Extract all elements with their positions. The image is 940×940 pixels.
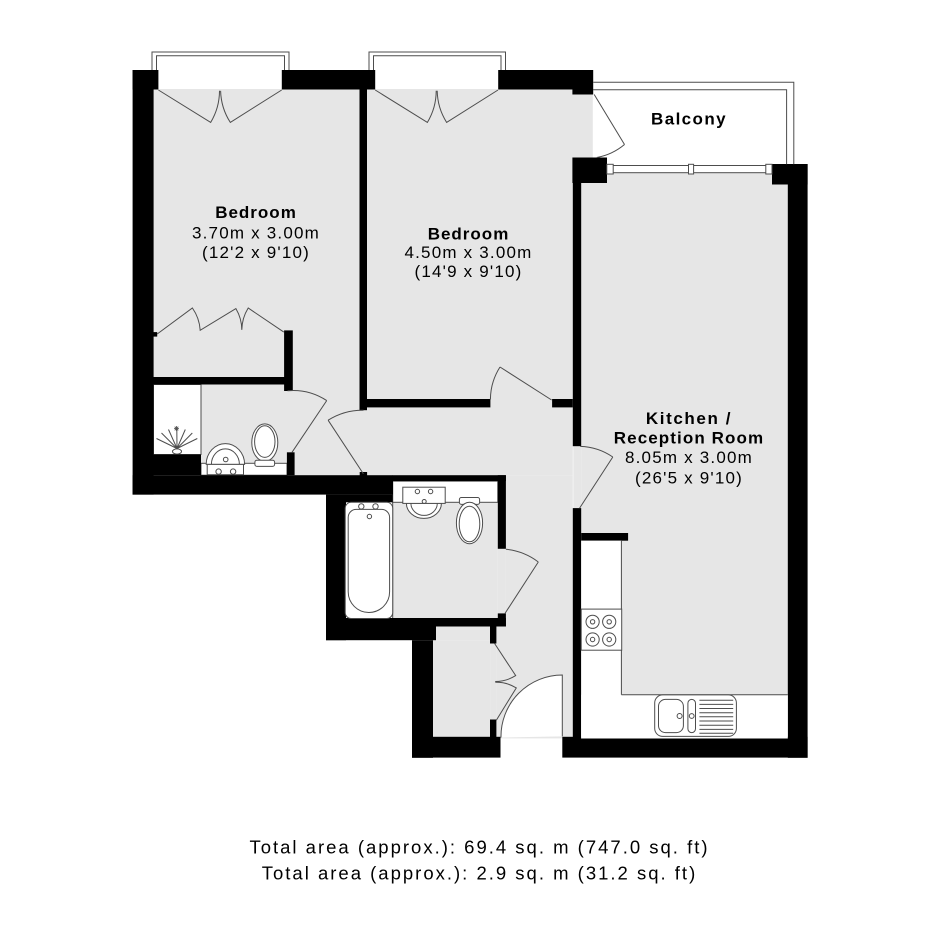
svg-text:Total area (approx.): 2.9 sq.: Total area (approx.): 2.9 sq. m (31.2 sq… — [262, 863, 697, 884]
svg-text:3.70m x 3.00m: 3.70m x 3.00m — [192, 224, 320, 243]
svg-text:Bedroom: Bedroom — [215, 203, 297, 222]
svg-text:(14'9 x 9'10): (14'9 x 9'10) — [414, 262, 522, 281]
svg-text:Total area (approx.): 69.4 sq.: Total area (approx.): 69.4 sq. m (747.0 … — [249, 837, 709, 858]
svg-text:Balcony: Balcony — [651, 110, 727, 129]
svg-text:Reception Room: Reception Room — [614, 429, 764, 448]
svg-text:Bedroom: Bedroom — [428, 224, 510, 243]
svg-text:8.05m x 3.00m: 8.05m x 3.00m — [625, 448, 753, 467]
svg-text:4.50m x 3.00m: 4.50m x 3.00m — [404, 243, 532, 262]
svg-text:(26'5 x 9'10): (26'5 x 9'10) — [635, 468, 743, 487]
svg-text:(12'2 x 9'10): (12'2 x 9'10) — [202, 243, 310, 262]
svg-text:Kitchen /: Kitchen / — [646, 409, 732, 428]
